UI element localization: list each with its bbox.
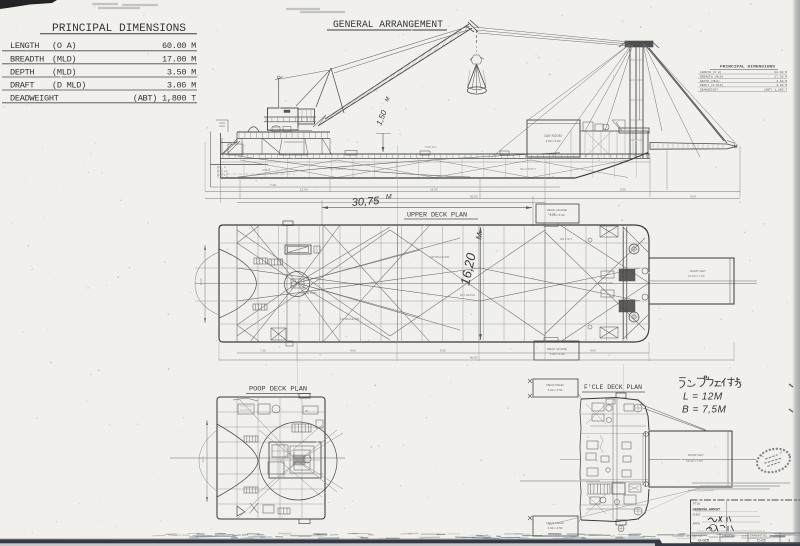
svg-text:DEADWEIGHT: DEADWEIGHT [10, 94, 59, 104]
svg-text:18.00: 18.00 [430, 188, 438, 192]
svg-text:DECK HOUSE: DECK HOUSE [547, 208, 567, 212]
svg-text:9.00: 9.00 [440, 349, 446, 353]
svg-text:DAY ROOM: DAY ROOM [544, 134, 561, 138]
svg-text:17.00 M: 17.00 M [774, 76, 787, 79]
svg-text:3.00 x 5.00: 3.00 x 5.00 [550, 213, 565, 217]
svg-text:CHKD: CHKD [693, 513, 701, 517]
svg-text:9.00: 9.00 [690, 195, 696, 199]
svg-text:60.00 M: 60.00 M [162, 41, 196, 51]
svg-text:BREADTH: BREADTH [10, 55, 44, 65]
svg-text:3.00 x 5.00: 3.00 x 5.00 [546, 139, 561, 143]
svg-text:3.00 M: 3.00 M [776, 84, 787, 87]
svg-text:LENGTH (O A): LENGTH (O A) [700, 70, 722, 74]
svg-text:(ABT) 1,800 T: (ABT) 1,800 T [764, 88, 788, 92]
svg-text:12.00 x 7.50: 12.00 x 7.50 [686, 459, 703, 463]
svg-text:17.00 M: 17.00 M [162, 55, 196, 65]
svg-text:M: M [386, 194, 392, 201]
svg-text:RAMP WAY: RAMP WAY [688, 453, 704, 457]
svg-text:W: W [305, 409, 308, 413]
svg-text:UPPER DECK PLAN: UPPER DECK PLAN [407, 212, 467, 219]
svg-text:2.00 x 3.50: 2.00 x 3.50 [548, 388, 563, 392]
svg-text:DRAFT (D MLD): DRAFT (D MLD) [700, 83, 724, 87]
svg-text:DEADWEIGHT: DEADWEIGHT [700, 89, 718, 92]
svg-text:PRINCIPAL DIMENSIONS: PRINCIPAL DIMENSIONS [720, 65, 776, 69]
svg-text:(ABT) 1,800 T: (ABT) 1,800 T [133, 94, 196, 104]
svg-text:DEPTH: DEPTH [10, 68, 34, 78]
svg-text:WINDLASS: WINDLASS [598, 281, 613, 285]
svg-text:5.00 W.L: 5.00 W.L [425, 145, 437, 149]
svg-text:8.50: 8.50 [201, 456, 205, 462]
svg-text:(O A): (O A) [52, 41, 76, 51]
svg-text:NO.1 W.T: NO.1 W.T [560, 237, 573, 241]
svg-text:NO.1 W.B.T: NO.1 W.B.T [330, 167, 346, 171]
svg-text:POOP DECK PLAN: POOP DECK PLAN [249, 386, 307, 393]
svg-text:(D MLD): (D MLD) [52, 81, 86, 91]
svg-text:W.T HATCH: W.T HATCH [460, 293, 475, 297]
svg-text:G-025: G-025 [698, 537, 710, 542]
svg-text:DECK FEND: DECK FEND [546, 383, 564, 387]
svg-text:3.00 M: 3.00 M [167, 81, 196, 91]
svg-text:12.00 x 7.50: 12.00 x 7.50 [688, 274, 705, 278]
svg-text:11.00: 11.00 [199, 278, 203, 285]
svg-text:12.00: 12.00 [300, 188, 308, 192]
svg-text:RAMP WAY: RAMP WAY [690, 269, 706, 273]
svg-text:LENGTH: LENGTH [10, 41, 39, 51]
svg-text:B = 7,5M: B = 7,5M [682, 405, 726, 416]
svg-text:CRANE POST: CRANE POST [300, 291, 317, 295]
svg-text:60.00: 60.00 [470, 356, 478, 360]
svg-text:7.20: 7.20 [270, 183, 276, 187]
svg-text:3.50 M: 3.50 M [167, 68, 196, 78]
svg-text:FR SPACE 600: FR SPACE 600 [430, 255, 450, 259]
svg-text:DEPTH (MLD): DEPTH (MLD) [700, 79, 720, 83]
svg-text:DRAFT: DRAFT [10, 81, 34, 91]
svg-text:APPD: APPD [693, 522, 701, 526]
svg-text:3.00 x 5.00: 3.00 x 5.00 [550, 352, 565, 356]
svg-text:NO.2 W.B.T: NO.2 W.B.T [520, 167, 536, 171]
svg-text:30,75: 30,75 [351, 195, 380, 209]
svg-text:~ . - .: ~ . - . [480, 531, 487, 535]
svg-text:5.00: 5.00 [620, 188, 626, 192]
svg-text:GENERAL ARRANGEMENT: GENERAL ARRANGEMENT [333, 20, 443, 31]
svg-text:2.00 x 3.50: 2.00 x 3.50 [548, 526, 563, 530]
svg-text:PRINCIPAL DIMENSIONS: PRINCIPAL DIMENSIONS [52, 23, 186, 35]
svg-text:60.00 M: 60.00 M [774, 71, 787, 74]
svg-text:7.20: 7.20 [260, 349, 266, 353]
svg-text:9.00: 9.00 [350, 349, 356, 353]
svg-text:30.00: 30.00 [470, 195, 478, 199]
svg-text:F'CLE DECK PLAN: F'CLE DECK PLAN [584, 384, 642, 391]
svg-text:FR SPACE 600: FR SPACE 600 [340, 317, 360, 321]
svg-text:(MLD): (MLD) [52, 55, 76, 65]
svg-text:TITLE: TITLE [693, 502, 701, 506]
svg-text:L = 12M: L = 12M [683, 392, 723, 403]
svg-text:3.50 M: 3.50 M [776, 80, 787, 83]
svg-text:9.60: 9.60 [590, 349, 596, 353]
svg-text:GENERAL ARRGT: GENERAL ARRGT [693, 508, 721, 512]
svg-text:DECK HOUSE: DECK HOUSE [547, 347, 567, 351]
svg-text:(MLD): (MLD) [52, 68, 76, 78]
svg-text:BREADTH (MLD): BREADTH (MLD) [700, 75, 724, 79]
